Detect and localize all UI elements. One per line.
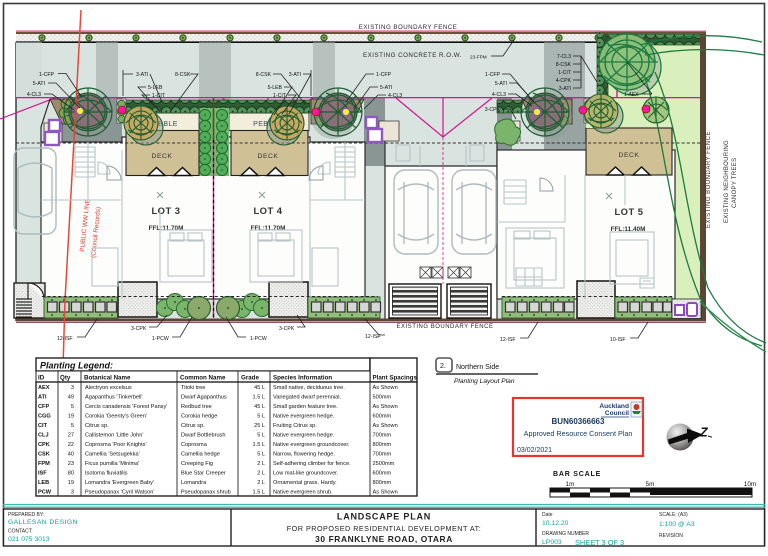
svg-text:5-LEB: 5-LEB: [268, 85, 283, 91]
svg-text:2.: 2.: [440, 363, 446, 370]
svg-text:12-ISF: 12-ISF: [57, 336, 73, 342]
svg-text:800mm: 800mm: [373, 480, 392, 486]
svg-text:Low mat-like groundcover.: Low mat-like groundcover.: [273, 471, 339, 477]
svg-text:LOT 4: LOT 4: [253, 205, 282, 216]
svg-text:5-ATI: 5-ATI: [380, 85, 392, 91]
svg-text:5: 5: [71, 423, 74, 429]
svg-text:2500mm: 2500mm: [373, 461, 395, 467]
svg-text:BUN60366663: BUN60366663: [552, 417, 605, 426]
svg-text:27: 27: [68, 433, 74, 439]
svg-text:GALLESAN DESIGN: GALLESAN DESIGN: [8, 519, 78, 526]
svg-text:1.5 L: 1.5 L: [253, 442, 265, 448]
svg-text:40: 40: [68, 452, 74, 458]
svg-text:800mm: 800mm: [373, 442, 392, 448]
svg-text:Coprosma 'Poor Knights': Coprosma 'Poor Knights': [85, 442, 147, 448]
svg-text:Auckland: Auckland: [599, 403, 629, 410]
svg-text:ISF: ISF: [38, 471, 47, 477]
svg-text:5: 5: [71, 404, 74, 410]
svg-text:DECK: DECK: [152, 153, 173, 160]
svg-text:FPM: FPM: [38, 461, 50, 467]
svg-text:5 L: 5 L: [257, 452, 265, 458]
svg-text:4-CL3: 4-CL3: [27, 92, 41, 98]
svg-text:SHEET 3 OF 3: SHEET 3 OF 3: [575, 538, 624, 547]
svg-text:3-CPK: 3-CPK: [485, 107, 501, 113]
svg-text:2 L: 2 L: [257, 461, 265, 467]
svg-text:Pseudopanax 'Cyril Watson': Pseudopanax 'Cyril Watson': [85, 490, 154, 496]
svg-text:DECK: DECK: [258, 153, 279, 160]
svg-text:500mm: 500mm: [373, 395, 392, 401]
svg-text:AEX: AEX: [38, 385, 50, 391]
svg-text:FOR PROPOSED RESIDENTIAL DE: FOR PROPOSED RESIDENTIAL DEVELOPMENT AT:: [287, 524, 481, 533]
svg-text:Agapanthus 'Tinkerbell': Agapanthus 'Tinkerbell': [85, 395, 143, 401]
svg-text:1:100 @ A3: 1:100 @ A3: [659, 521, 695, 528]
svg-text:LEB: LEB: [38, 480, 49, 486]
svg-text:Redbud tree: Redbud tree: [181, 404, 212, 410]
svg-text:FFL:11.70M: FFL:11.70M: [149, 225, 184, 232]
svg-text:Qty: Qty: [60, 375, 71, 382]
svg-text:25 L: 25 L: [254, 423, 265, 429]
svg-text:80: 80: [68, 471, 74, 477]
svg-text:LOT 3: LOT 3: [151, 205, 180, 216]
svg-text:EXISTING BOUNDARY FENCE: EXISTING BOUNDARY FENCE: [359, 24, 457, 31]
svg-text:Titoki tree: Titoki tree: [181, 385, 205, 391]
svg-text:10m: 10m: [744, 481, 756, 488]
svg-text:Northern Side: Northern Side: [456, 364, 499, 371]
svg-text:1-AEX: 1-AEX: [624, 92, 639, 98]
svg-text:EXISTING BOUNDARY FENCE: EXISTING BOUNDARY FENCE: [397, 324, 494, 330]
svg-text:Botanical Name: Botanical Name: [84, 375, 131, 382]
svg-text:49: 49: [68, 395, 74, 401]
svg-text:19: 19: [68, 414, 74, 420]
svg-text:Council: Council: [605, 410, 629, 417]
svg-text:5-ATI: 5-ATI: [495, 81, 507, 87]
svg-text:2 L: 2 L: [257, 471, 265, 477]
svg-text:700mm: 700mm: [373, 452, 392, 458]
svg-text:BAR SCALE: BAR SCALE: [553, 471, 601, 478]
svg-text:CLJ: CLJ: [38, 433, 49, 439]
svg-text:3-ATI: 3-ATI: [289, 72, 301, 78]
svg-text:Date: Date: [542, 512, 553, 518]
svg-text:8-CSK: 8-CSK: [256, 72, 272, 78]
svg-text:Pseudopanax shrub: Pseudopanax shrub: [181, 490, 231, 496]
svg-text:Corokia hedge: Corokia hedge: [181, 414, 217, 420]
svg-text:Fruiting Citrus sp.: Fruiting Citrus sp.: [273, 423, 317, 429]
svg-text:DECK: DECK: [619, 152, 640, 159]
svg-text:Common Name: Common Name: [180, 375, 226, 382]
svg-text:Grade: Grade: [241, 375, 259, 382]
svg-text:10.12.20: 10.12.20: [542, 520, 569, 527]
svg-text:4-CL3: 4-CL3: [388, 93, 402, 99]
svg-text:30 FRANKLYNE ROAD, OTARA: 30 FRANKLYNE ROAD, OTARA: [315, 534, 453, 544]
svg-text:Variegated dwarf perennial.: Variegated dwarf perennial.: [273, 395, 341, 401]
svg-text:12-ISF: 12-ISF: [500, 337, 516, 343]
svg-text:021 075 3013: 021 075 3013: [8, 536, 50, 543]
svg-text:12-ISF: 12-ISF: [365, 334, 381, 340]
svg-text:Plant Spacings: Plant Spacings: [373, 375, 418, 382]
svg-text:CFP: CFP: [38, 404, 49, 410]
svg-text:Lomandra: Lomandra: [181, 480, 207, 486]
svg-text:1-CIT: 1-CIT: [558, 70, 572, 76]
svg-text:4-CL3: 4-CL3: [492, 92, 506, 98]
svg-text:1.5 L: 1.5 L: [253, 490, 265, 496]
svg-text:3: 3: [71, 490, 74, 496]
svg-text:Blue Star Creeper: Blue Star Creeper: [181, 471, 226, 477]
svg-text:22: 22: [68, 442, 74, 448]
svg-text:Corokia 'Geenty's Green': Corokia 'Geenty's Green': [85, 414, 147, 420]
svg-text:LP003: LP003: [542, 539, 562, 546]
svg-text:1-PCW: 1-PCW: [152, 336, 169, 342]
svg-text:Coprosma: Coprosma: [181, 442, 208, 448]
svg-text:Self-adhering climber for fenc: Self-adhering climber for fence.: [273, 461, 351, 467]
svg-text:45 L: 45 L: [254, 385, 265, 391]
svg-text:600mm: 600mm: [373, 471, 392, 477]
svg-text:PCW: PCW: [38, 490, 52, 496]
svg-text:Native evergreen shrub.: Native evergreen shrub.: [273, 490, 333, 496]
svg-text:Citrus sp.: Citrus sp.: [181, 423, 205, 429]
svg-text:PREPARED BY:: PREPARED BY:: [8, 512, 44, 518]
svg-text:ID: ID: [38, 375, 45, 382]
svg-text:4-CPK: 4-CPK: [556, 78, 572, 84]
svg-text:CIT: CIT: [38, 423, 48, 429]
svg-text:2 L: 2 L: [257, 480, 265, 486]
svg-text:8-CSK: 8-CSK: [556, 62, 572, 68]
svg-text:CGG: CGG: [38, 414, 51, 420]
svg-text:23-FPM: 23-FPM: [470, 55, 487, 60]
svg-text:700mm: 700mm: [373, 433, 392, 439]
svg-text:Z: Z: [699, 426, 709, 440]
svg-text:As Shown: As Shown: [373, 404, 398, 410]
svg-text:EXISTING CONCRETE R.O.W.: EXISTING CONCRETE R.O.W.: [363, 52, 462, 59]
svg-text:45 L: 45 L: [254, 404, 265, 410]
svg-text:10-ISF: 10-ISF: [610, 337, 626, 343]
svg-text:DRAWING NUMBER: DRAWING NUMBER: [542, 531, 589, 537]
svg-text:Narrow, flowering hedge.: Narrow, flowering hedge.: [273, 452, 335, 458]
svg-text:3-CPK: 3-CPK: [131, 326, 147, 332]
svg-text:03/02/2021: 03/02/2021: [517, 447, 552, 454]
svg-text:1-CFP: 1-CFP: [39, 72, 55, 78]
svg-text:Cercis canadensis 'Forest Pans: Cercis canadensis 'Forest Pansy': [85, 404, 167, 410]
svg-text:Planting Legend:: Planting Legend:: [40, 361, 113, 371]
svg-text:Alectryon excelsus: Alectryon excelsus: [85, 385, 132, 391]
svg-text:Dwarf Agapanthus: Dwarf Agapanthus: [181, 395, 227, 401]
svg-text:8-CSK: 8-CSK: [175, 72, 191, 78]
svg-text:Planting Layout Plan: Planting Layout Plan: [454, 378, 515, 385]
svg-text:1-PCW: 1-PCW: [250, 336, 267, 342]
svg-text:LOT 5: LOT 5: [614, 206, 643, 217]
svg-text:7-CL3: 7-CL3: [557, 54, 571, 60]
svg-text:EXISTING NEIGHBOURING: EXISTING NEIGHBOURING: [724, 140, 730, 223]
svg-text:Creeping Fig: Creeping Fig: [181, 461, 213, 467]
svg-text:1-CFP: 1-CFP: [485, 72, 501, 78]
svg-text:600mm: 600mm: [373, 414, 392, 420]
svg-text:3: 3: [71, 385, 74, 391]
svg-text:3-CPK: 3-CPK: [279, 326, 295, 332]
svg-text:REVISION: REVISION: [659, 533, 683, 539]
svg-text:5m: 5m: [646, 481, 655, 488]
svg-text:Native evergreen hedge.: Native evergreen hedge.: [273, 414, 335, 420]
svg-text:CSK: CSK: [38, 452, 50, 458]
svg-text:19: 19: [68, 480, 74, 486]
svg-text:1-CFP: 1-CFP: [376, 72, 392, 78]
svg-text:5-ATI: 5-ATI: [33, 81, 45, 87]
svg-text:1m: 1m: [566, 481, 575, 488]
svg-text:Ornamental grass. Hardy.: Ornamental grass. Hardy.: [273, 480, 337, 486]
svg-text:ATI: ATI: [38, 395, 47, 401]
svg-text:Lomandra 'Evergreen Baby': Lomandra 'Evergreen Baby': [85, 480, 154, 486]
svg-text:1.5 L: 1.5 L: [253, 395, 265, 401]
svg-text:Small native, deciduous tree.: Small native, deciduous tree.: [273, 385, 345, 391]
svg-text:Small garden feature tree.: Small garden feature tree.: [273, 404, 338, 410]
svg-text:Ficus pumilla 'Minima': Ficus pumilla 'Minima': [85, 461, 139, 467]
svg-text:Camellia hedge: Camellia hedge: [181, 452, 220, 458]
svg-text:23: 23: [68, 461, 74, 467]
svg-text:CONTACT:: CONTACT:: [8, 529, 33, 535]
svg-text:3-ATI: 3-ATI: [559, 86, 571, 92]
svg-text:Camellia 'Setsugekka': Camellia 'Setsugekka': [85, 452, 140, 458]
svg-text:Native evergreen groundcover.: Native evergreen groundcover.: [273, 442, 350, 448]
svg-text:Citrus sp.: Citrus sp.: [85, 423, 109, 429]
svg-text:CPK: CPK: [38, 442, 50, 448]
svg-text:EXISTING BOUNDARY FENCE: EXISTING BOUNDARY FENCE: [706, 131, 712, 228]
svg-text:CANOPY TREES: CANOPY TREES: [732, 158, 738, 208]
svg-text:Native evergreen hedge.: Native evergreen hedge.: [273, 433, 335, 439]
svg-text:SCALE: (A3): SCALE: (A3): [659, 512, 688, 518]
svg-text:Approved Resource Consent Plan: Approved Resource Consent Plan: [524, 429, 633, 438]
svg-text:Dwarf Bottlebrush: Dwarf Bottlebrush: [181, 433, 225, 439]
svg-text:As Shown: As Shown: [373, 423, 398, 429]
svg-text:FFL:11.70M: FFL:11.70M: [251, 225, 286, 232]
svg-text:3-ATI: 3-ATI: [136, 72, 148, 78]
svg-text:5 L: 5 L: [257, 433, 265, 439]
svg-text:Species Information: Species Information: [273, 375, 332, 382]
svg-text:Isotoma fluviatilis: Isotoma fluviatilis: [85, 471, 128, 477]
svg-text:LANDSCAPE PLAN: LANDSCAPE PLAN: [337, 512, 431, 522]
svg-text:5 L: 5 L: [257, 414, 265, 420]
svg-text:As Shown: As Shown: [373, 490, 398, 496]
svg-text:Callistemon 'Little John': Callistemon 'Little John': [85, 433, 143, 439]
svg-text:As Shown: As Shown: [373, 385, 398, 391]
